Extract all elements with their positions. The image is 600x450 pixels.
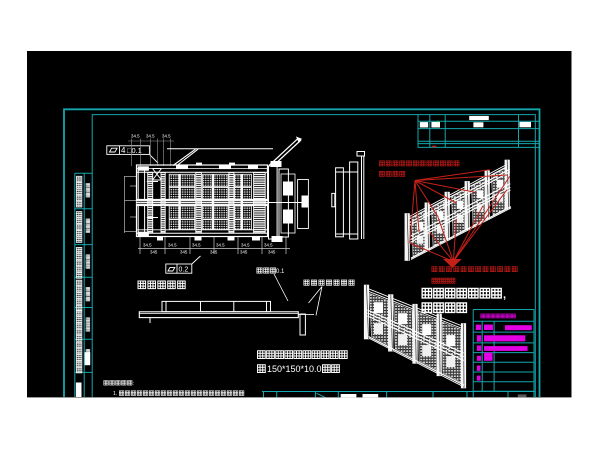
svg-text:34.5: 34.5 [216,243,225,248]
svg-text:0.2: 0.2 [179,267,189,274]
svg-text:34.5: 34.5 [131,134,140,139]
svg-text:150*150*10.0: 150*150*10.0 [267,364,322,374]
svg-text:34.5: 34.5 [146,134,155,139]
svg-text:□0.1: □0.1 [127,146,142,155]
svg-text:345: 345 [240,250,248,255]
svg-text:34.5: 34.5 [192,243,201,248]
svg-text::: : [133,381,134,387]
svg-text:4: 4 [121,146,126,155]
svg-text:34.5: 34.5 [162,134,171,139]
svg-text:345: 345 [268,250,276,255]
svg-text:345: 345 [150,250,158,255]
svg-text:345: 345 [180,250,188,255]
svg-text:34.5: 34.5 [143,243,152,248]
svg-text:34.5: 34.5 [264,243,273,248]
svg-text:0.1: 0.1 [276,269,285,275]
svg-text:34.5: 34.5 [241,243,250,248]
svg-text:34.5: 34.5 [168,243,177,248]
svg-text:1.: 1. [113,391,117,397]
svg-text:,: , [503,289,506,301]
